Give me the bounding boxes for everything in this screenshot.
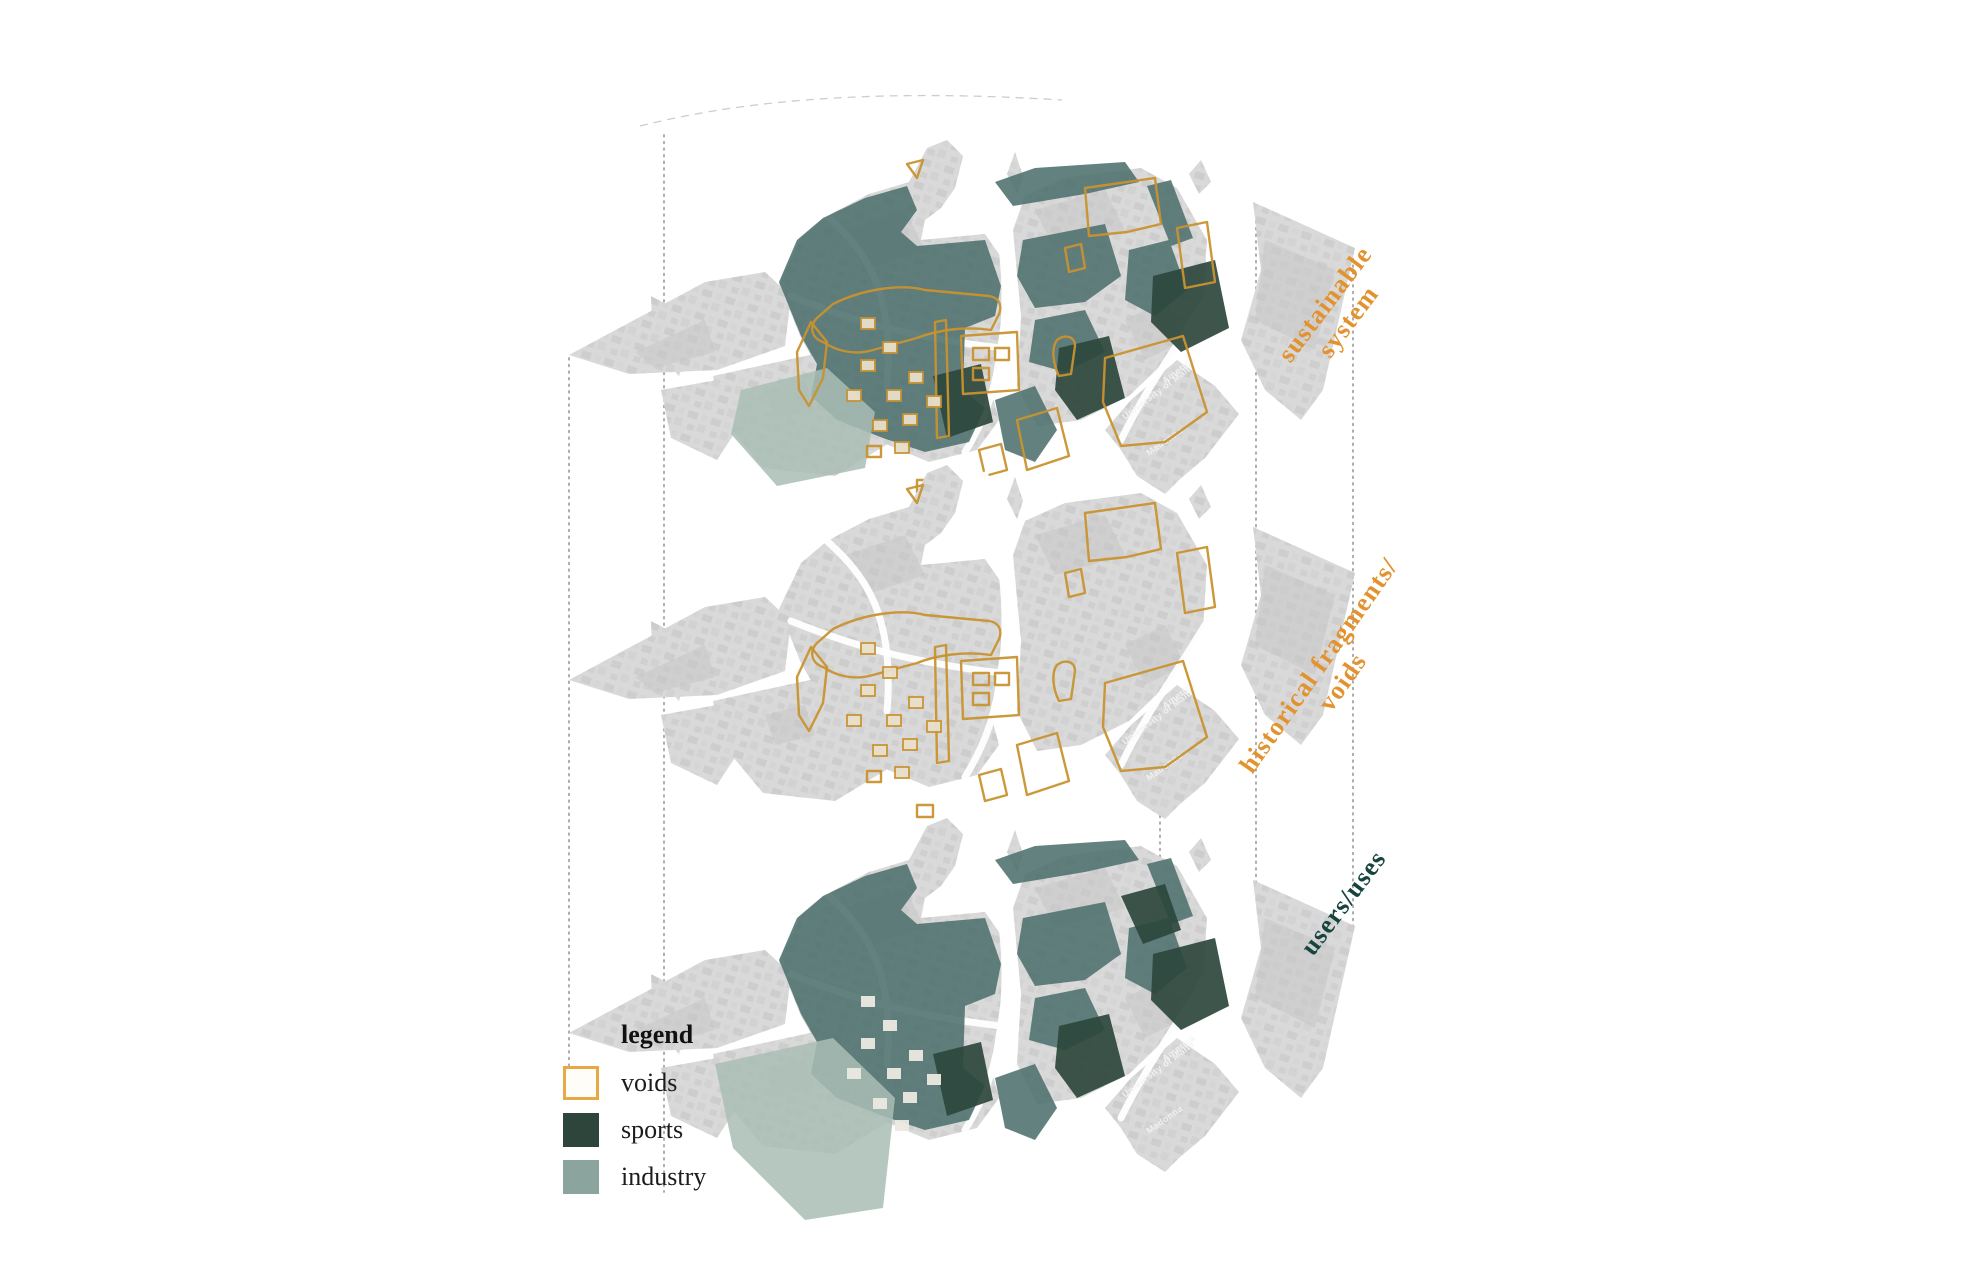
plate-historical-fragments — [569, 465, 1355, 819]
legend-heading: legend — [621, 1020, 706, 1050]
legend: legend voids sports industry — [563, 1020, 706, 1205]
legend-label: voids — [621, 1068, 677, 1098]
sports-swatch — [563, 1113, 599, 1147]
map-plates-svg: America University of Malta Madonna — [0, 0, 1974, 1283]
legend-label: sports — [621, 1115, 683, 1145]
legend-label: industry — [621, 1162, 706, 1192]
industry-swatch — [563, 1160, 599, 1194]
exploded-map-diagram: America University of Malta Madonna — [0, 0, 1974, 1283]
legend-item-sports: sports — [563, 1111, 706, 1149]
faint-guide-curve — [640, 96, 1062, 126]
legend-item-voids: voids — [563, 1064, 706, 1102]
voids-swatch — [563, 1066, 599, 1100]
legend-item-industry: industry — [563, 1158, 706, 1196]
plate-sustainable-system — [569, 140, 1355, 494]
